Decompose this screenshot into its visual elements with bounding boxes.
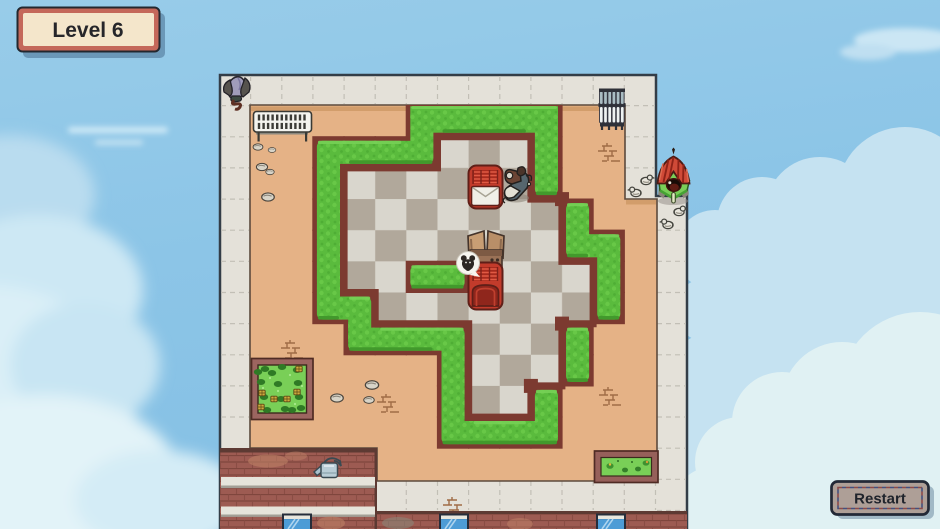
svg-text:Restart: Restart (854, 491, 906, 508)
svg-text:Level 6: Level 6 (52, 19, 123, 42)
